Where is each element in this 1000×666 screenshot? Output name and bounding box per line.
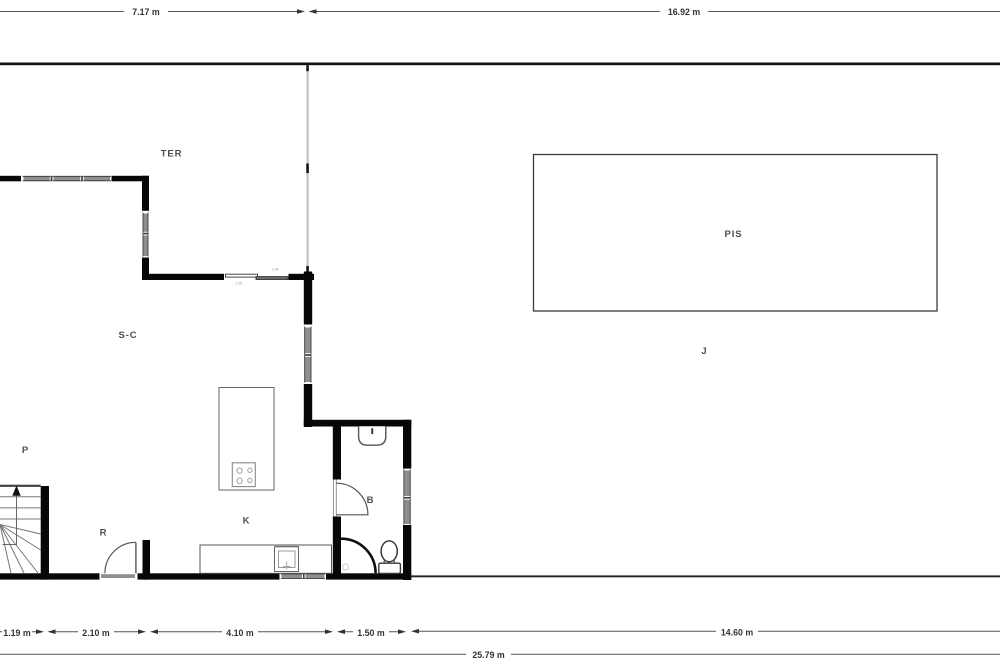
svg-text:16.92 m: 16.92 m [668,7,700,17]
svg-text:2.10 m: 2.10 m [82,628,110,638]
svg-text:B: B [367,495,375,506]
svg-text:1.50 m: 1.50 m [357,628,385,638]
svg-text:TER: TER [161,149,183,160]
svg-text:R: R [100,528,108,539]
svg-text:S-C: S-C [118,330,137,341]
svg-text:1.19 m: 1.19 m [3,628,31,638]
svg-text:2.06: 2.06 [272,268,279,272]
svg-text:4.10 m: 4.10 m [226,628,254,638]
svg-text:PIS: PIS [724,229,742,240]
svg-text:14.60 m: 14.60 m [721,627,753,637]
svg-text:7.17 m: 7.17 m [132,7,160,17]
svg-text:K: K [243,516,251,527]
svg-text:P: P [22,445,29,456]
svg-text:J: J [701,346,707,357]
svg-text:1.26: 1.26 [235,281,242,285]
svg-text:25.79 m: 25.79 m [472,650,504,660]
